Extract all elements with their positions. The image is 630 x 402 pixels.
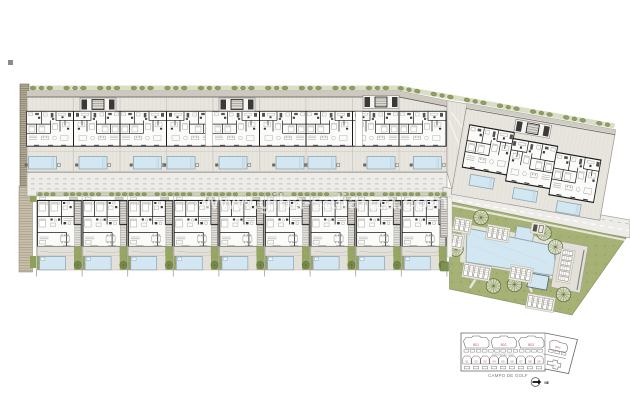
svg-text:NE: NE bbox=[545, 381, 549, 385]
svg-text:09: 09 bbox=[537, 360, 541, 364]
svg-text:03: 03 bbox=[483, 360, 487, 364]
svg-text:01: 01 bbox=[465, 360, 469, 364]
svg-text:B03: B03 bbox=[528, 343, 534, 347]
svg-text:06: 06 bbox=[510, 360, 514, 364]
svg-text:www.giba-salianza.com: www.giba-salianza.com bbox=[201, 189, 448, 214]
svg-text:07: 07 bbox=[519, 360, 523, 364]
svg-text:B02: B02 bbox=[501, 343, 507, 347]
svg-text:CAMPO DE GOLF: CAMPO DE GOLF bbox=[488, 373, 528, 378]
svg-text:05: 05 bbox=[501, 360, 505, 364]
svg-text:B01: B01 bbox=[473, 343, 479, 347]
svg-text:08: 08 bbox=[528, 360, 532, 364]
svg-text:04: 04 bbox=[492, 360, 496, 364]
svg-text:02: 02 bbox=[474, 360, 478, 364]
